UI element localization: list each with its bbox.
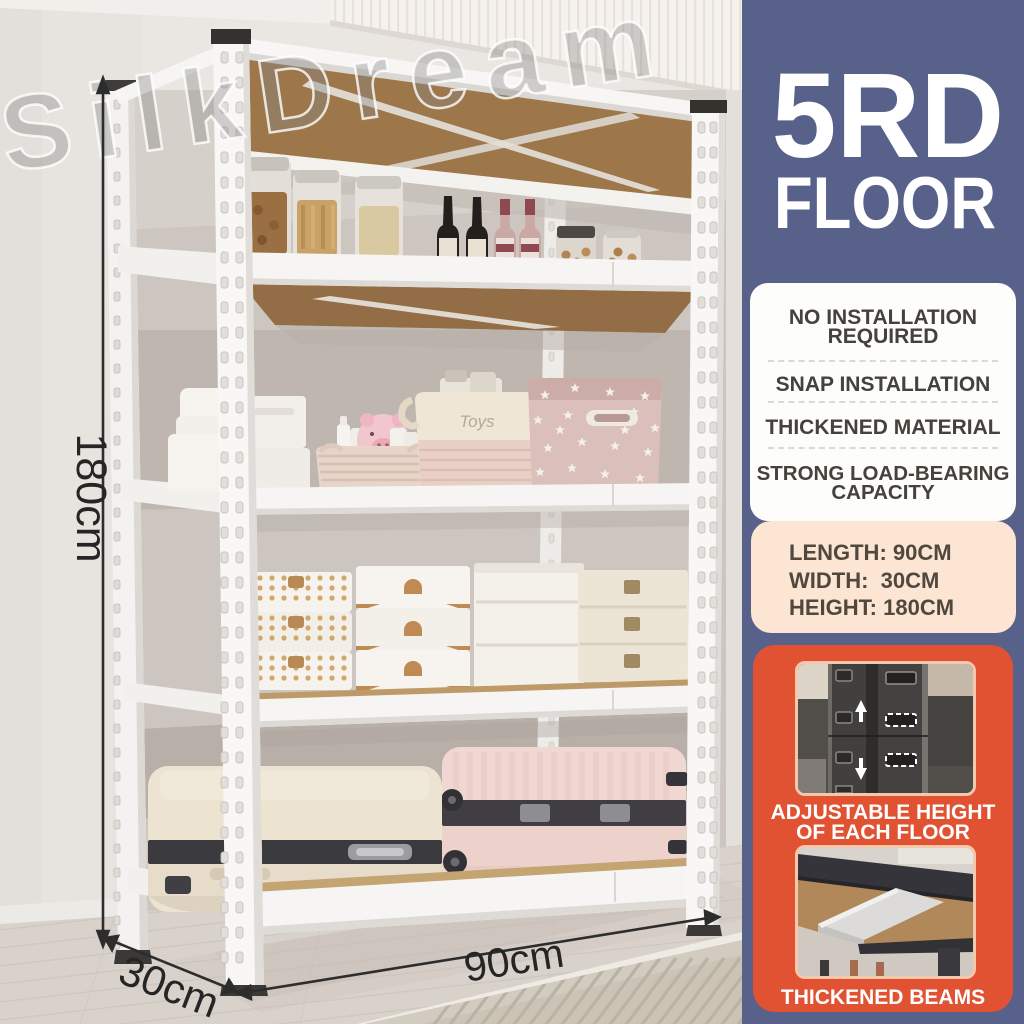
svg-text:Toys: Toys [459, 412, 495, 431]
svg-text:180cm: 180cm [67, 433, 115, 562]
